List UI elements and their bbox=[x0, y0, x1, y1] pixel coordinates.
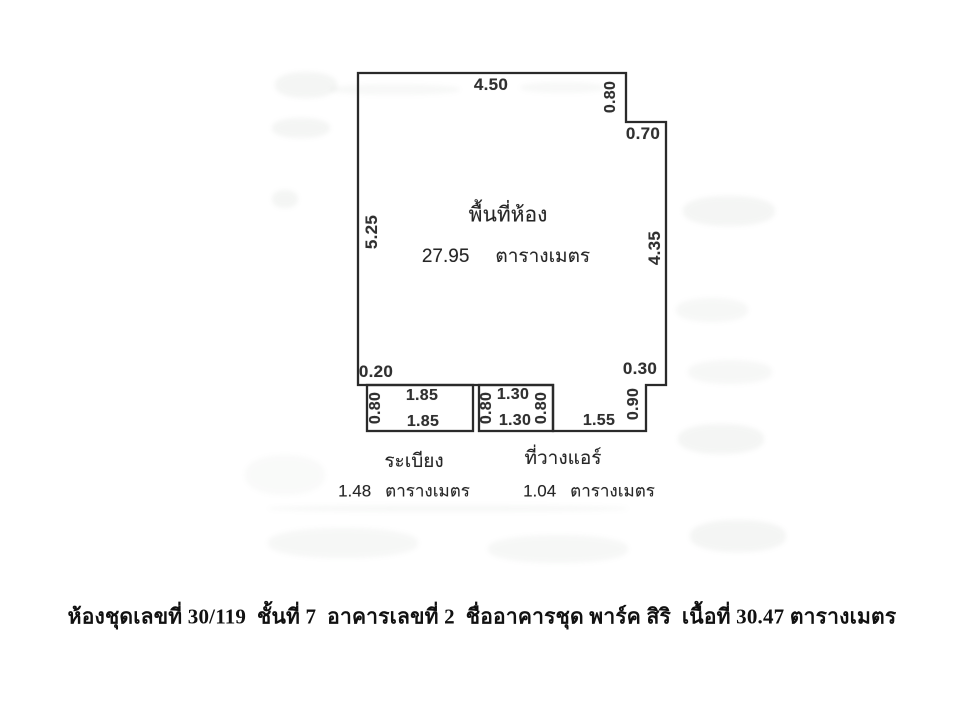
room-area-value: 27.95 bbox=[422, 246, 470, 268]
ac-shelf-title: ที่วางแอร์ bbox=[524, 443, 601, 473]
dim-balcony-depth: 0.80 bbox=[367, 392, 385, 424]
dim-notch-depth: 0.80 bbox=[602, 81, 620, 113]
dim-ac-left-depth: 0.80 bbox=[478, 392, 496, 424]
ac-shelf-area-unit: ตารางเมตร bbox=[570, 478, 655, 505]
balcony-area-line: 1.48 ตารางเมตร bbox=[338, 478, 470, 505]
dim-right-height: 4.35 bbox=[645, 231, 665, 265]
scanned-floor-plan-page: 4.50 0.80 0.70 5.25 4.35 0.20 0.30 0.80 … bbox=[0, 0, 960, 720]
ac-shelf-area-value: 1.04 bbox=[523, 482, 556, 502]
dim-ac-bottom-width: 1.30 bbox=[499, 412, 531, 430]
room-area-title: พื้นที่ห้อง bbox=[469, 199, 548, 232]
dim-ledge-bottom-width: 1.55 bbox=[583, 412, 615, 430]
balcony-area-unit: ตารางเมตร bbox=[385, 478, 470, 505]
dim-balcony-bottom-width: 1.85 bbox=[407, 413, 439, 431]
dim-ledge-right-depth: 0.90 bbox=[625, 388, 643, 420]
dim-bottom-right-inset: 0.30 bbox=[623, 359, 657, 379]
dim-notch-width: 0.70 bbox=[626, 124, 660, 144]
dim-bottom-left-inset: 0.20 bbox=[359, 362, 393, 382]
room-area-unit: ตารางเมตร bbox=[495, 241, 590, 271]
dim-left-height: 5.25 bbox=[362, 215, 382, 249]
ac-shelf-area-line: 1.04 ตารางเมตร bbox=[523, 478, 655, 505]
dim-ac-top-width: 1.30 bbox=[497, 386, 529, 404]
dim-balcony-top-width: 1.85 bbox=[406, 387, 438, 405]
unit-caption: ห้องชุดเลขที่ 30/119 ชั้นที่ 7 อาคารเลขท… bbox=[68, 601, 897, 634]
room-area-line: 27.95 ตารางเมตร bbox=[422, 241, 590, 271]
dim-ac-right-depth: 0.80 bbox=[533, 392, 551, 424]
dim-top-width: 4.50 bbox=[474, 75, 508, 95]
balcony-title: ระเบียง bbox=[384, 446, 443, 476]
balcony-area-value: 1.48 bbox=[338, 482, 371, 502]
